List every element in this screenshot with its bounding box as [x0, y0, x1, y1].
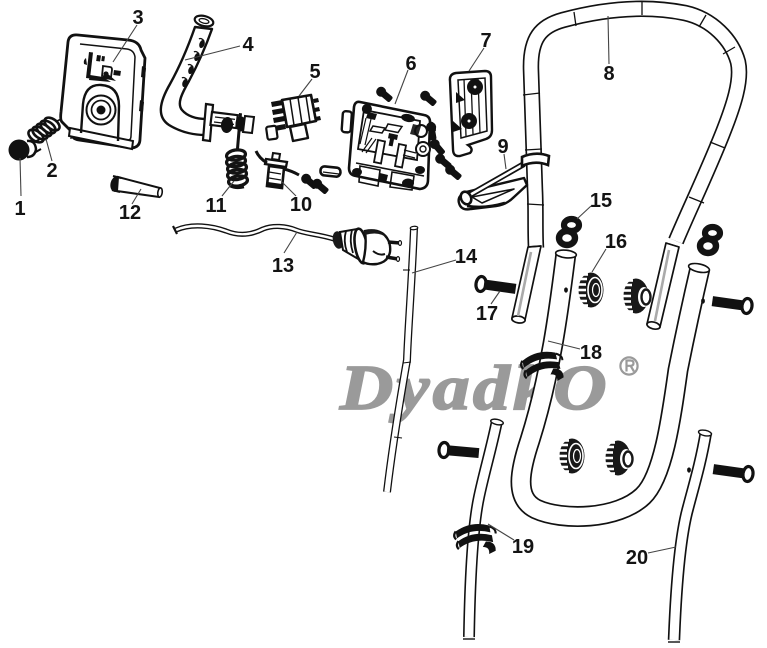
svg-text:7: 7	[480, 30, 491, 52]
svg-text:11: 11	[205, 195, 226, 217]
svg-text:10: 10	[290, 194, 312, 216]
svg-text:12: 12	[119, 202, 141, 224]
svg-text:9: 9	[497, 136, 508, 158]
svg-text:5: 5	[309, 61, 320, 83]
svg-text:14: 14	[455, 246, 478, 268]
svg-text:1: 1	[14, 198, 25, 220]
svg-text:19: 19	[512, 536, 534, 558]
svg-text:3: 3	[132, 7, 143, 29]
svg-text:15: 15	[590, 190, 612, 212]
svg-text:DyadkO: DyadkO	[339, 352, 610, 423]
svg-text:2: 2	[46, 160, 57, 182]
svg-text:16: 16	[605, 231, 627, 253]
svg-text:13: 13	[272, 255, 294, 277]
svg-text:17: 17	[476, 303, 498, 325]
svg-text:6: 6	[405, 53, 416, 75]
svg-text:20: 20	[626, 547, 648, 569]
svg-text:4: 4	[242, 34, 254, 56]
svg-text:18: 18	[580, 342, 602, 364]
svg-text:8: 8	[603, 63, 614, 85]
